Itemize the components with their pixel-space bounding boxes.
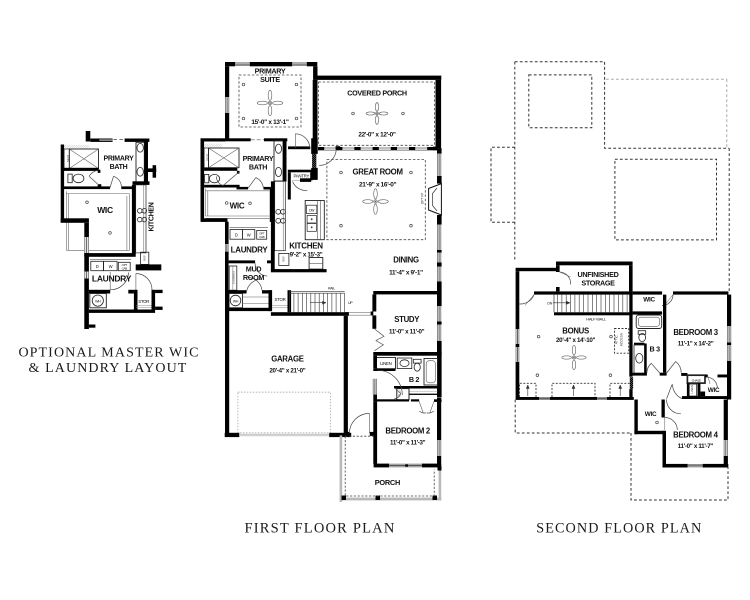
svg-text:WIC: WIC (645, 411, 657, 418)
svg-text:BONUS: BONUS (562, 327, 589, 336)
svg-text:CHASE: CHASE (692, 378, 701, 382)
svg-text:15'-0" x 13'-1": 15'-0" x 13'-1" (251, 119, 289, 126)
svg-text:STORAGE: STORAGE (581, 279, 615, 288)
svg-text:11'-1" x 14'-2": 11'-1" x 14'-2" (678, 341, 714, 348)
svg-text:LINEN: LINEN (690, 385, 694, 394)
svg-text:BEDROOM 2: BEDROOM 2 (385, 427, 430, 436)
svg-text:DN: DN (547, 302, 552, 306)
svg-text:WIC: WIC (97, 205, 113, 215)
svg-text:DINING: DINING (393, 256, 419, 265)
svg-text:SECOND FLOOR PLAN: SECOND FLOOR PLAN (536, 520, 702, 536)
svg-text:OPT FP: OPT FP (421, 193, 425, 204)
svg-text:BATH: BATH (249, 162, 267, 171)
svg-text:W: W (109, 264, 113, 269)
svg-text:W: W (247, 232, 251, 237)
svg-text:SUITE: SUITE (260, 75, 280, 84)
svg-text:BATH: BATH (110, 164, 128, 171)
svg-text:BEDROOM 3: BEDROOM 3 (673, 328, 718, 337)
svg-text:REF: REF (282, 256, 286, 262)
svg-text:11'-0" x 11'-7": 11'-0" x 11'-7" (678, 443, 714, 450)
svg-text:CUBBIES: CUBBIES (232, 271, 236, 284)
svg-text:KITCHEN: KITCHEN (289, 241, 323, 250)
svg-text:RAIL: RAIL (328, 287, 335, 291)
svg-text:WH: WH (233, 299, 239, 303)
svg-text:22'-0" x 12'-0": 22'-0" x 12'-0" (358, 132, 396, 139)
svg-text:ACCESS: ACCESS (620, 333, 624, 346)
svg-text:11'-0" x 11'-3": 11'-0" x 11'-3" (390, 440, 426, 447)
svg-text:WIC: WIC (230, 202, 245, 211)
svg-text:OPTIONAL MASTER WIC: OPTIONAL MASTER WIC (18, 345, 199, 360)
svg-text:D: D (96, 264, 99, 269)
svg-text:STOR: STOR (275, 297, 286, 302)
svg-text:STOR: STOR (138, 299, 149, 304)
svg-text:SEAT: SEAT (66, 154, 70, 162)
svg-text:LAUNDRY: LAUNDRY (231, 246, 269, 255)
svg-text:21'-9" x 16'-0": 21'-9" x 16'-0" (359, 182, 397, 189)
svg-text:ATTIC: ATTIC (615, 335, 619, 345)
svg-text:CAB: CAB (259, 235, 264, 239)
svg-text:& LAUNDRY LAYOUT: & LAUNDRY LAYOUT (29, 361, 188, 376)
svg-text:CAB: CAB (122, 267, 128, 271)
svg-text:WH: WH (95, 300, 101, 304)
svg-text:FIRST FLOOR PLAN: FIRST FLOOR PLAN (244, 520, 395, 536)
svg-text:11'-0" x 11'-0": 11'-0" x 11'-0" (389, 329, 425, 336)
svg-text:GARAGE: GARAGE (271, 355, 304, 364)
svg-text:WIC: WIC (708, 387, 720, 394)
svg-text:HALF WALL: HALF WALL (586, 317, 606, 322)
svg-text:PANTRY: PANTRY (293, 174, 309, 179)
svg-text:B 3: B 3 (650, 345, 661, 354)
svg-text:STUDY: STUDY (394, 315, 420, 324)
svg-text:REF: REF (142, 255, 146, 261)
svg-text:COVERED PORCH: COVERED PORCH (347, 89, 407, 98)
svg-text:BEDROOM 4: BEDROOM 4 (673, 431, 718, 440)
svg-text:B 2: B 2 (409, 375, 420, 384)
svg-text:11'-4" x 9'-1": 11'-4" x 9'-1" (389, 270, 423, 277)
svg-text:20'-4" x 14'-10": 20'-4" x 14'-10" (556, 337, 595, 344)
svg-text:D: D (235, 232, 238, 237)
svg-text:GREAT ROOM: GREAT ROOM (353, 168, 403, 177)
svg-text:20'-4" x 21'-0": 20'-4" x 21'-0" (269, 368, 305, 375)
svg-text:PORCH: PORCH (375, 478, 400, 487)
svg-text:WIC: WIC (643, 297, 655, 304)
svg-text:LINEN: LINEN (380, 361, 392, 366)
svg-text:PRIMARY: PRIMARY (104, 156, 135, 163)
svg-text:ROOM: ROOM (243, 273, 264, 282)
svg-text:KITCHEN: KITCHEN (149, 202, 156, 231)
svg-text:SEAT: SEAT (205, 153, 209, 161)
